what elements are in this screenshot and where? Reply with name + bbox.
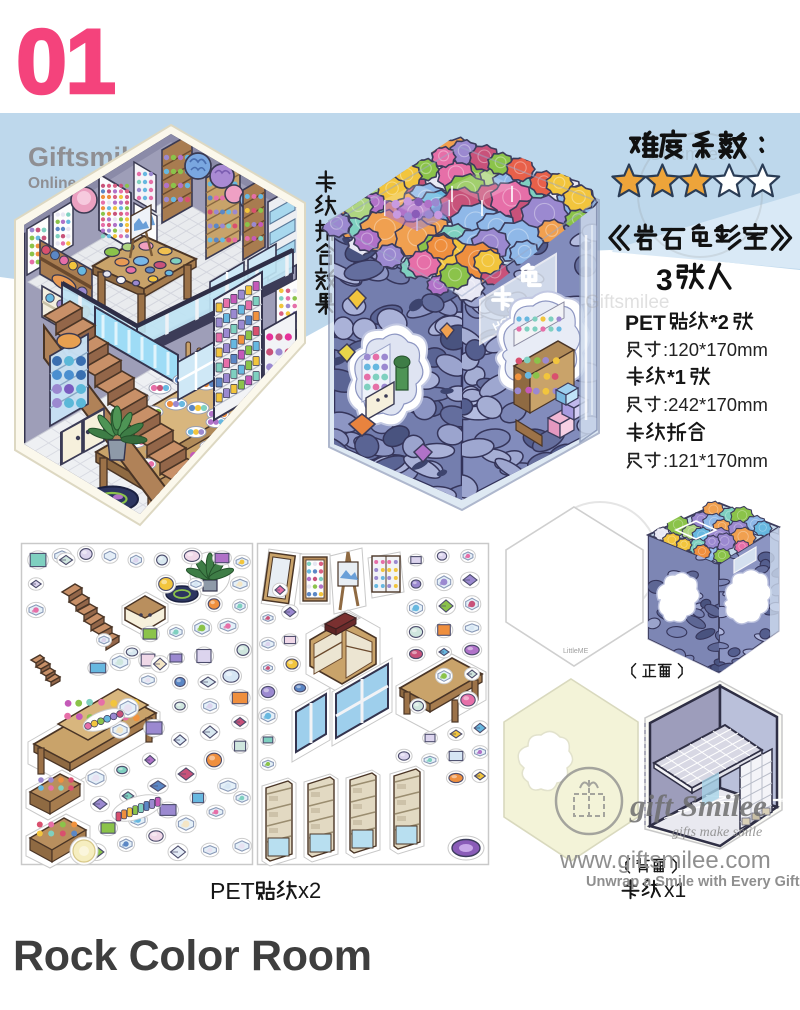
svg-text:gifts make smile: gifts make smile: [672, 825, 762, 840]
svg-text::120*170mm: :120*170mm: [663, 339, 768, 360]
svg-text:Giftsmilee: Giftsmilee: [585, 292, 669, 313]
svg-text:PET: PET: [625, 312, 666, 335]
svg-text:www.giftsmilee.com: www.giftsmilee.com: [559, 847, 771, 874]
svg-text::121*170mm: :121*170mm: [663, 450, 768, 471]
svg-text:LittleME: LittleME: [563, 648, 589, 655]
svg-text:*2: *2: [710, 312, 729, 334]
svg-text:01: 01: [16, 11, 114, 113]
svg-text:*1: *1: [667, 367, 686, 389]
svg-text:PET: PET: [210, 878, 255, 904]
svg-text:Unwrap a Smile with Every Gift: Unwrap a Smile with Every Gift: [586, 874, 800, 890]
svg-text:x2: x2: [298, 878, 321, 903]
svg-text:Rock Color Room: Rock Color Room: [13, 932, 372, 980]
svg-text::242*170mm: :242*170mm: [663, 394, 768, 415]
svg-text:gift Smilee: gift Smilee: [629, 788, 767, 823]
